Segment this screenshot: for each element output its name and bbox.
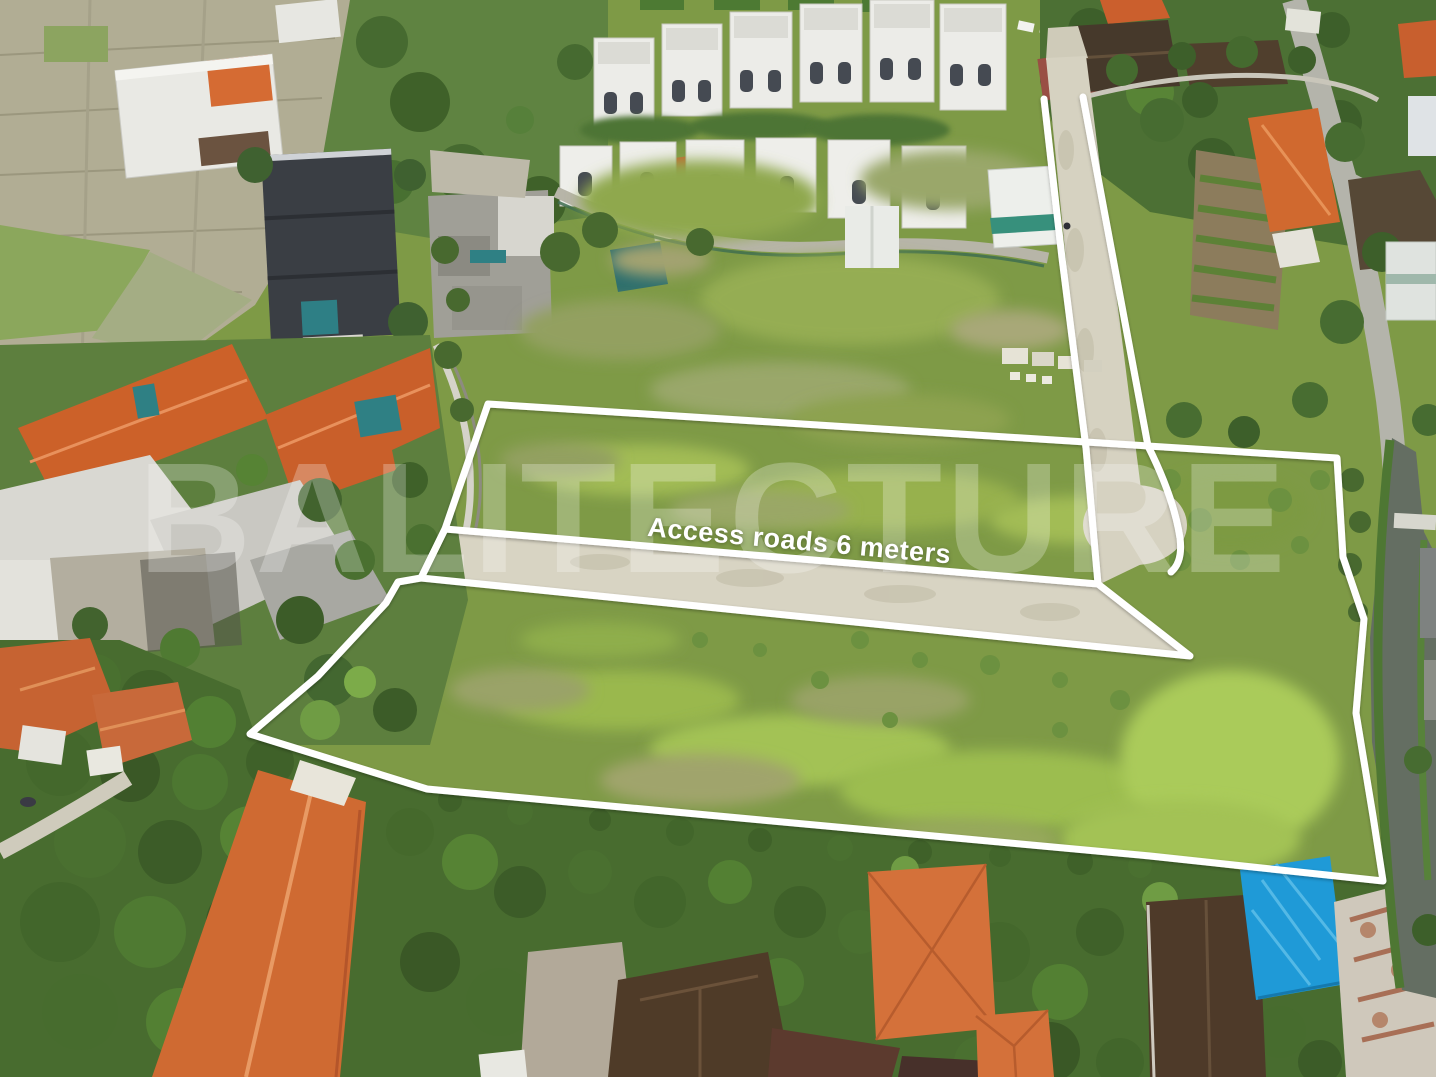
house-topleft-small [275, 0, 341, 43]
roof-orange-edge [1398, 20, 1436, 78]
aerial-land-plot-photo: BALITECTURE Access roads 6 meters [0, 0, 1436, 1077]
villa-charcoal [261, 149, 401, 352]
tree [237, 147, 273, 183]
white-gabled-shed [845, 206, 899, 268]
tree [394, 159, 426, 191]
pool [354, 395, 402, 438]
motorbike [20, 797, 36, 807]
canal-bridge [1394, 513, 1436, 530]
person-on-road [1064, 223, 1071, 230]
white-shed-green-stripe [988, 166, 1058, 248]
